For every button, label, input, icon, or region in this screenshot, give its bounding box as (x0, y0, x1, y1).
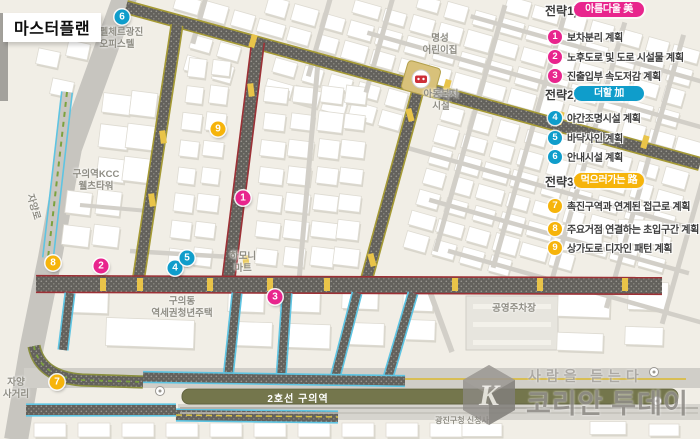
station-name-label: 2호선 구의역 (267, 390, 328, 405)
masterplan-page: 아펠체르광진 오피스텔명성 어린이집아동복지 시설구의역KCC 웰츠타워하모니 … (0, 0, 700, 439)
map-canvas (0, 0, 700, 439)
landmark-icon (415, 76, 427, 84)
page-title: 마스터플랜 (3, 13, 101, 42)
subway-line2-station-bar (182, 389, 678, 404)
